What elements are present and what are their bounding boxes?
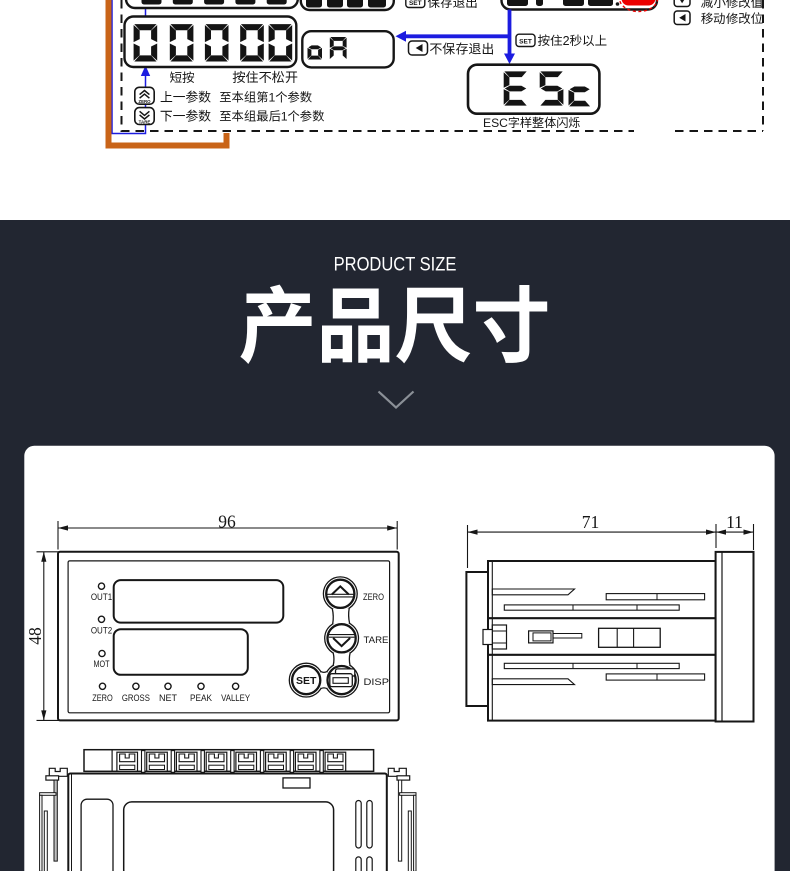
svg-text:DISP: DISP — [364, 677, 390, 687]
svg-text:SET: SET — [296, 675, 317, 687]
svg-text:96: 96 — [218, 512, 236, 532]
svg-text:GROSS: GROSS — [122, 693, 150, 703]
svg-text:按住不松开: 按住不松开 — [232, 67, 298, 86]
svg-text:ESC字样整体闪烁: ESC字样整体闪烁 — [483, 114, 580, 131]
svg-text:48: 48 — [25, 627, 45, 645]
svg-text:上一参数: 上一参数 — [160, 86, 211, 105]
svg-text:SET: SET — [409, 0, 422, 7]
svg-text:OUT1: OUT1 — [91, 592, 112, 602]
svg-text:NET: NET — [159, 693, 177, 703]
svg-text:短按: 短按 — [170, 67, 195, 86]
svg-text:ZERO: ZERO — [92, 693, 113, 703]
svg-text:11: 11 — [726, 512, 743, 532]
svg-text:至本组最后1个参数: 至本组最后1个参数 — [219, 107, 325, 125]
svg-text:MOT: MOT — [94, 659, 110, 669]
svg-text:产品尺寸: 产品尺寸 — [239, 260, 551, 380]
svg-text:71: 71 — [582, 512, 600, 532]
svg-text:不保存退出: 不保存退出 — [429, 39, 494, 58]
svg-text:至本组第1个参数: 至本组第1个参数 — [219, 87, 313, 105]
svg-text:移动修改位: 移动修改位 — [701, 8, 764, 27]
svg-text:下一参数: 下一参数 — [160, 106, 211, 125]
svg-text:SET: SET — [519, 39, 532, 46]
svg-text:ZERO: ZERO — [363, 592, 384, 602]
svg-text:TARE: TARE — [139, 119, 151, 124]
svg-text:保存退出: 保存退出 — [428, 0, 478, 11]
svg-text:OUT2: OUT2 — [91, 626, 112, 636]
svg-text:按住2秒以上: 按住2秒以上 — [538, 30, 608, 49]
svg-text:VALLEY: VALLEY — [221, 693, 250, 703]
svg-text:ZERO: ZERO — [138, 99, 151, 104]
svg-text:TARE: TARE — [364, 635, 389, 645]
svg-text:PEAK: PEAK — [190, 693, 213, 703]
